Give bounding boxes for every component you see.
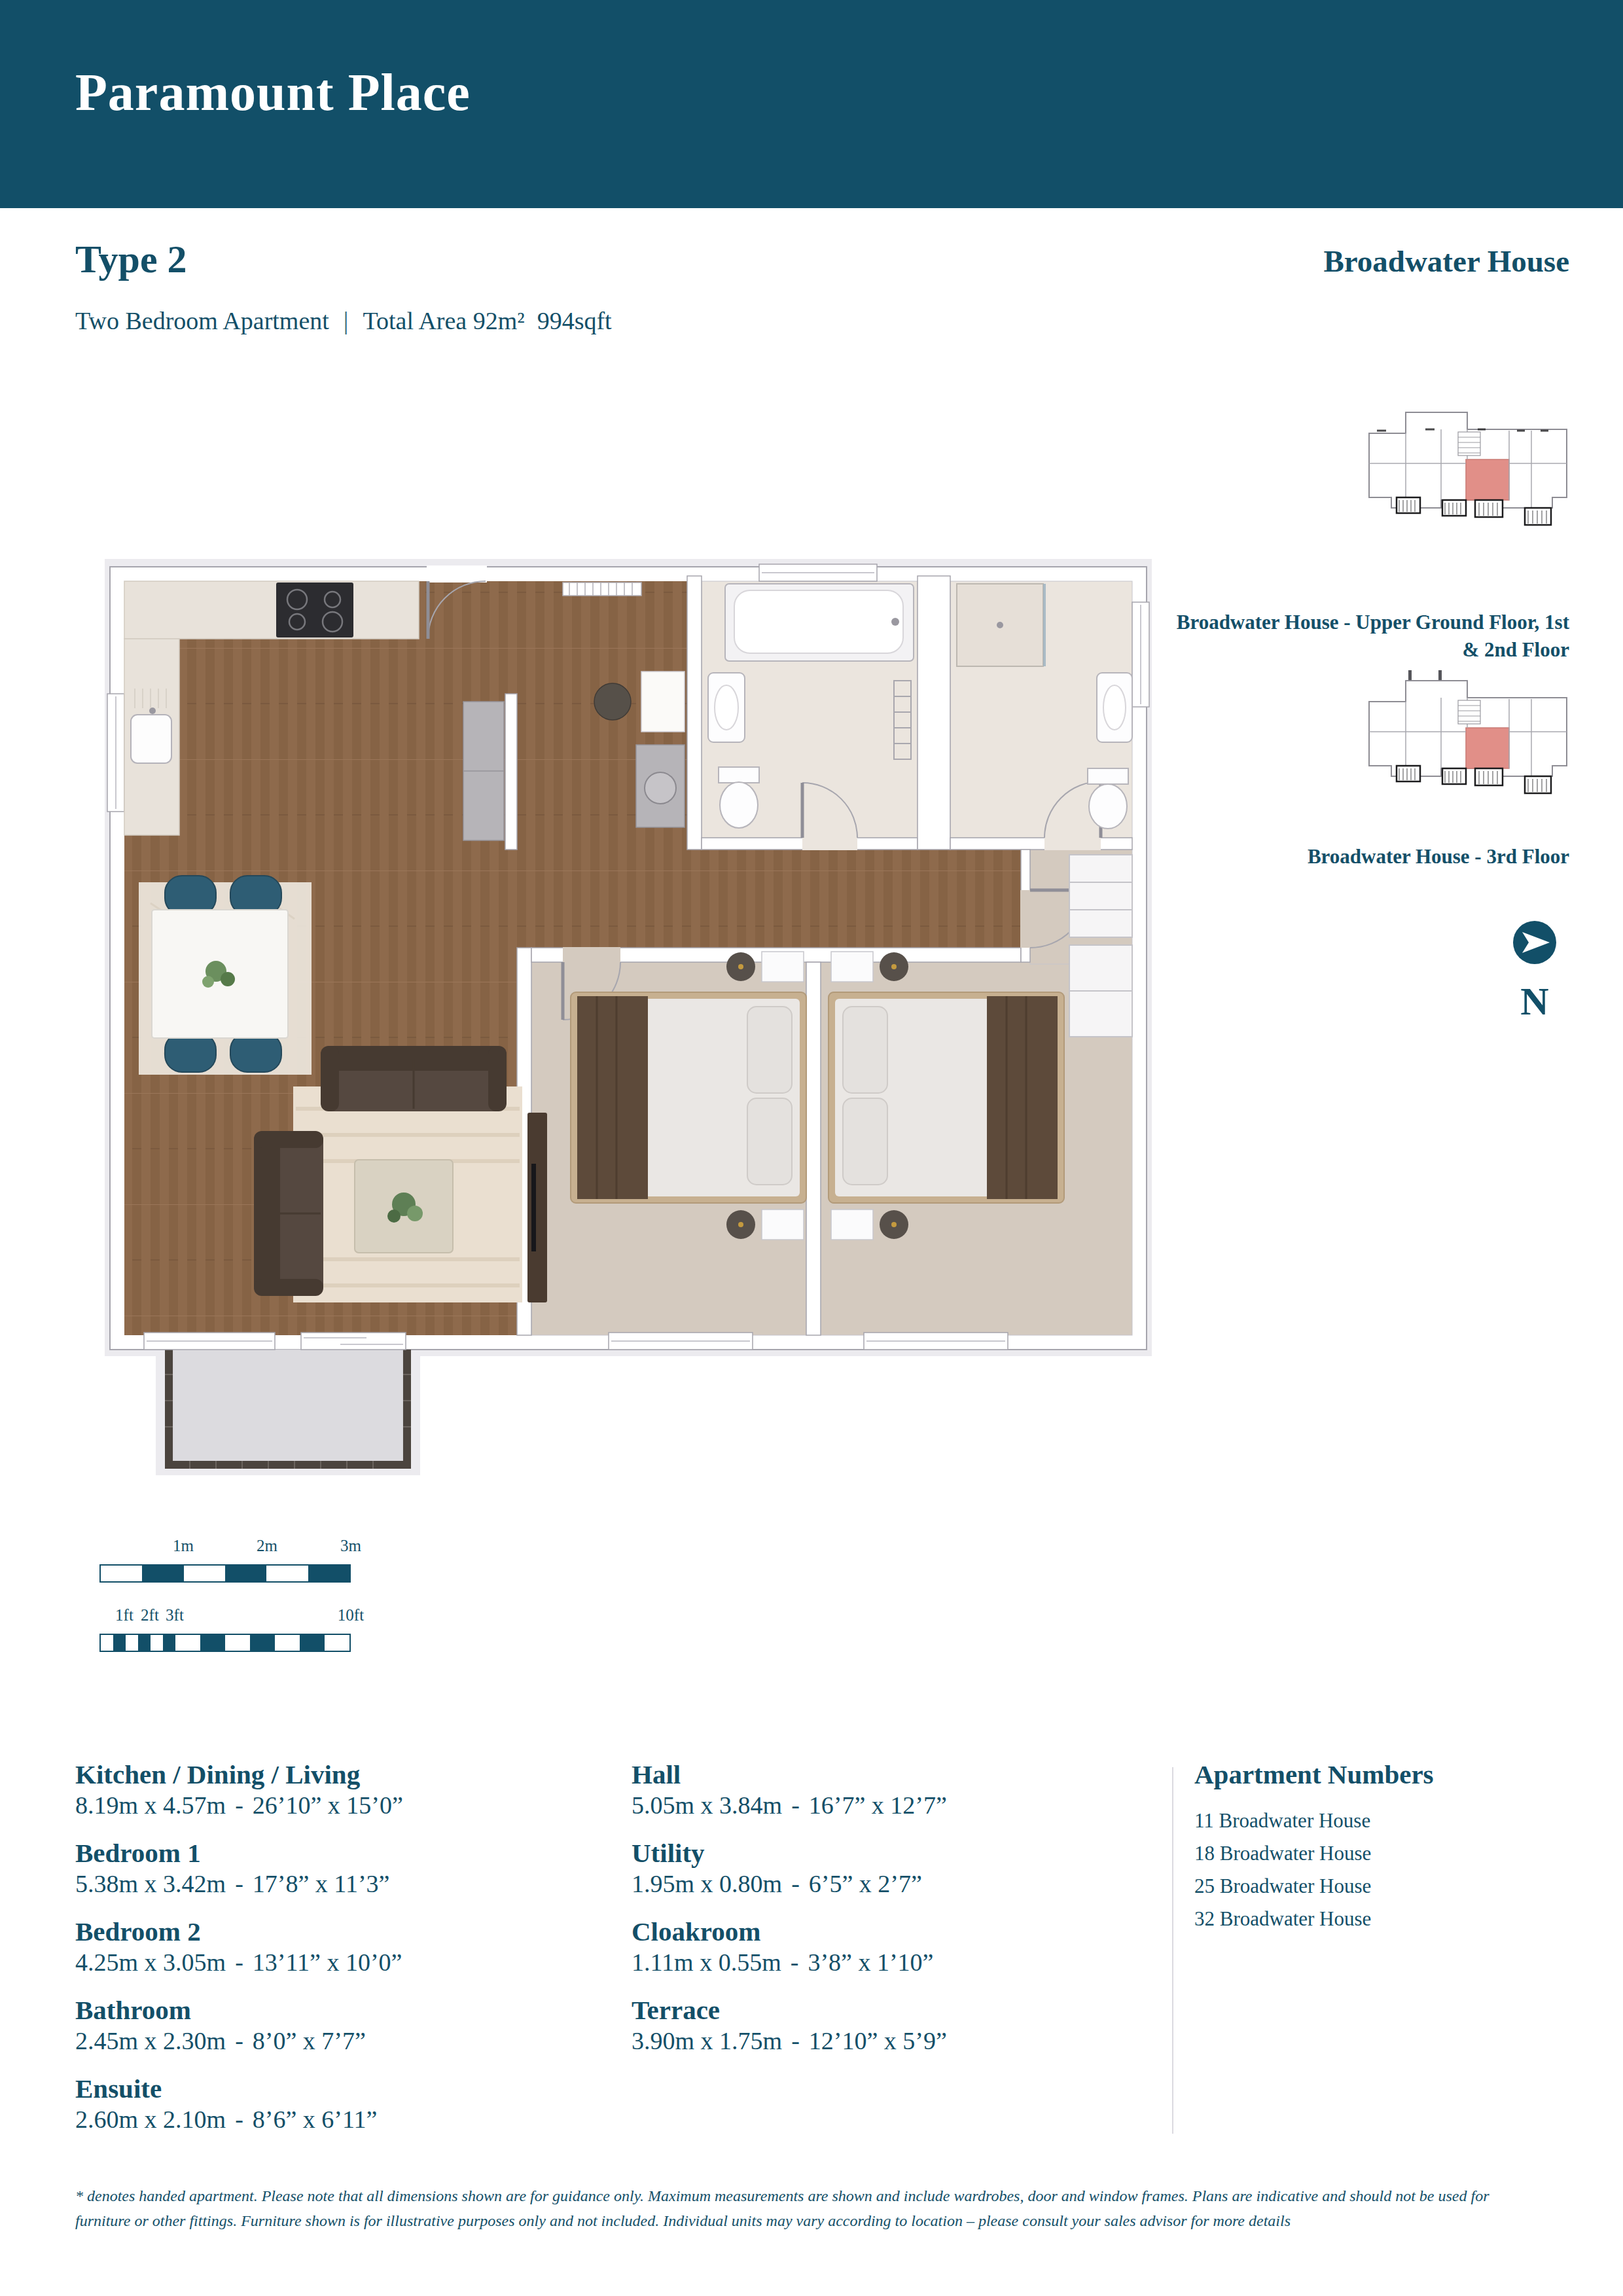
hall-cabinet xyxy=(641,672,685,732)
floorplan-graphic xyxy=(105,537,1152,1479)
development-title: Paramount Place xyxy=(75,63,471,122)
bed2-throw xyxy=(577,996,648,1199)
keyplan-third-floor xyxy=(1363,669,1572,819)
stair-core xyxy=(1458,700,1480,724)
room-utility: Utility 1.95m x 0.80m-6’5” x 2’7” xyxy=(632,1838,1168,1899)
room-list-right: Hall 5.05m x 3.84m-16’7” x 12’7” Utility… xyxy=(632,1759,1168,2073)
ensuite-toilet-icon xyxy=(1088,768,1128,829)
bedside-table xyxy=(762,1210,804,1240)
pillow xyxy=(747,1098,792,1185)
sofa-2 xyxy=(254,1131,323,1296)
wardrobe xyxy=(1069,855,1132,1037)
scale-2ft: 2ft xyxy=(141,1606,159,1624)
scale-1ft: 1ft xyxy=(115,1606,134,1624)
room-cloakroom: Cloakroom 1.11m x 0.55m-3’8” x 1’10” xyxy=(632,1916,1168,1977)
scale-2m: 2m xyxy=(257,1537,277,1555)
bathtub-icon xyxy=(725,584,914,661)
apartment-numbers-divider xyxy=(1172,1767,1173,2134)
radiator-icon xyxy=(563,583,641,596)
header-band: Paramount Place xyxy=(0,0,1623,208)
north-letter: N xyxy=(1520,980,1548,1023)
room-bedroom-2: Bedroom 2 4.25m x 3.05m-13’11” x 10’0” xyxy=(75,1916,612,1977)
bedside-table xyxy=(831,952,873,982)
room-hall: Hall 5.05m x 3.84m-16’7” x 12’7” xyxy=(632,1759,1168,1820)
tv-unit xyxy=(527,1113,547,1302)
keyplan-upper-label: Broadwater House - Upper Ground Floor, 1… xyxy=(1164,609,1569,664)
room-bedroom-1: Bedroom 1 5.38m x 3.42m-17’8” x 11’3” xyxy=(75,1838,612,1899)
apartment-number-item: 25 Broadwater House xyxy=(1194,1870,1561,1903)
plan-subtitle: Two Bedroom Apartment|Total Area 92m² 99… xyxy=(75,306,612,335)
keyplan-third-label: Broadwater House - 3rd Floor xyxy=(1164,843,1569,870)
terrace xyxy=(165,1350,411,1469)
washing-machine-icon xyxy=(636,745,685,827)
ensuite-sink-icon xyxy=(1097,673,1132,742)
room-list-left: Kitchen / Dining / Living 8.19m x 4.57m-… xyxy=(75,1759,612,2152)
bathroom-toilet-icon xyxy=(719,767,759,828)
bedside-table xyxy=(762,952,804,982)
apartment-numbers-heading: Apartment Numbers xyxy=(1194,1759,1561,1790)
dining-area xyxy=(139,876,312,1075)
apartment-numbers: Apartment Numbers 11 Broadwater House 18… xyxy=(1194,1759,1561,1935)
bathroom-sink-icon xyxy=(708,673,745,742)
subtitle-separator: | xyxy=(329,307,363,334)
room-terrace: Terrace 3.90m x 1.75m-12’10” x 5’9” xyxy=(632,1995,1168,2056)
plan-type-title: Type 2 xyxy=(75,237,187,282)
scale-1m: 1m xyxy=(173,1537,194,1555)
scale-bars: 1m 2m 3m 1ft 2ft 3ft 10ft xyxy=(99,1537,351,1668)
room-bathroom: Bathroom 2.45m x 2.30m-8’0” x 7’7” xyxy=(75,1995,612,2056)
brochure-page: Paramount Place Type 2 Two Bedroom Apart… xyxy=(0,0,1623,2296)
highlighted-apartment xyxy=(1466,728,1509,768)
subtitle-bedrooms: Two Bedroom Apartment xyxy=(75,307,329,334)
highlighted-apartment xyxy=(1466,459,1509,500)
metric-scale-bar xyxy=(99,1564,351,1583)
hob-icon xyxy=(276,583,353,637)
coffee-table xyxy=(355,1160,453,1253)
bedside-table xyxy=(831,1210,873,1240)
scale-3ft: 3ft xyxy=(166,1606,184,1624)
pillow xyxy=(747,1007,792,1093)
pillow xyxy=(843,1007,887,1093)
tall-unit-icon xyxy=(463,702,504,840)
pillow xyxy=(843,1098,887,1185)
bedroom-2 xyxy=(571,952,806,1240)
building-name: Broadwater House xyxy=(1323,243,1569,279)
apartment-number-item: 18 Broadwater House xyxy=(1194,1837,1561,1870)
room-ensuite: Ensuite 2.60m x 2.10m-8’6” x 6’11” xyxy=(75,2073,612,2134)
shower-icon xyxy=(957,584,1044,666)
sofa xyxy=(321,1046,507,1111)
hall-table xyxy=(594,683,631,720)
apartment-number-item: 11 Broadwater House xyxy=(1194,1804,1561,1837)
stair-core xyxy=(1458,432,1480,456)
bed1-throw xyxy=(987,996,1058,1199)
keyplan-upper-floors xyxy=(1363,401,1572,551)
apartment-number-item: 32 Broadwater House xyxy=(1194,1903,1561,1935)
scale-10ft: 10ft xyxy=(338,1606,364,1624)
north-arrow: N xyxy=(1509,919,1560,1030)
imperial-scale-bar xyxy=(99,1634,351,1652)
scale-3m: 3m xyxy=(340,1537,361,1555)
disclaimer-text: * denotes handed apartment. Please note … xyxy=(75,2183,1522,2233)
subtitle-area: Total Area 92m² 994sqft xyxy=(363,307,611,334)
room-kitchen-dining-living: Kitchen / Dining / Living 8.19m x 4.57m-… xyxy=(75,1759,612,1820)
